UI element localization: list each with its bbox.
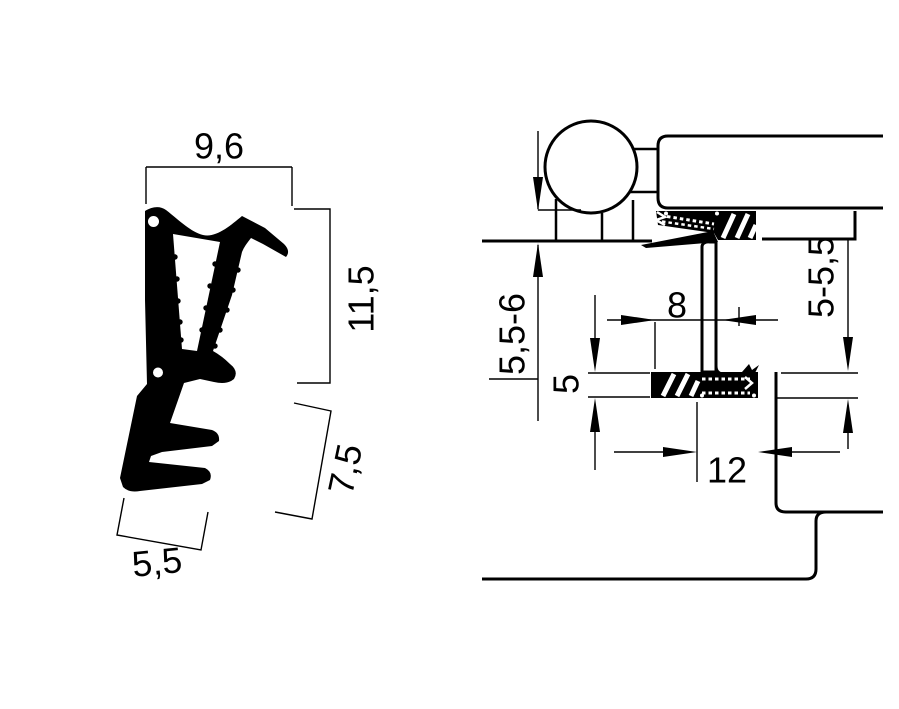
profile-hole-top	[148, 216, 159, 227]
dim-groove-depth-label: 5	[546, 374, 587, 394]
dim-top-width: 9,6	[146, 126, 292, 207]
dim-left-gap-label: 5,5-6	[492, 293, 533, 375]
dim-rebate-width-label: 12	[707, 450, 747, 491]
frame-step-face	[776, 372, 883, 512]
top-seal-groove	[641, 211, 756, 248]
seal-profile-figure: 9,6 11,5 7,5 5,5	[117, 126, 382, 586]
installation-figure: 5,5-6 5 8 5-5,5 12	[482, 121, 883, 579]
dim-top-width-label: 9,6	[194, 126, 244, 167]
dim-right-height-label: 11,5	[341, 265, 382, 332]
profile-hole-bottom	[153, 368, 163, 378]
dim-right-height: 11,5	[294, 209, 382, 383]
sash-underside-step	[762, 211, 855, 239]
dim-air-gap: 8	[607, 285, 778, 370]
dim-air-gap-label: 8	[667, 285, 687, 326]
dim-bottom-width: 5,5	[117, 498, 208, 585]
sash-block	[658, 136, 883, 208]
dim-rebate-width: 12	[614, 402, 840, 491]
frame-lower-contour	[482, 512, 826, 579]
dim-foot-length-label: 7,5	[320, 440, 371, 497]
dim-right-gap-label: 5-5,5	[801, 236, 842, 318]
technical-drawing: 9,6 11,5 7,5 5,5	[0, 0, 899, 709]
hinge-roller	[545, 121, 637, 213]
dim-bottom-width-label: 5,5	[130, 539, 184, 585]
sash-tongue	[702, 242, 716, 372]
dim-right-gap: 5-5,5	[776, 236, 858, 449]
technical-drawing-page: 9,6 11,5 7,5 5,5	[0, 0, 899, 709]
dim-foot-length: 7,5	[275, 403, 370, 519]
